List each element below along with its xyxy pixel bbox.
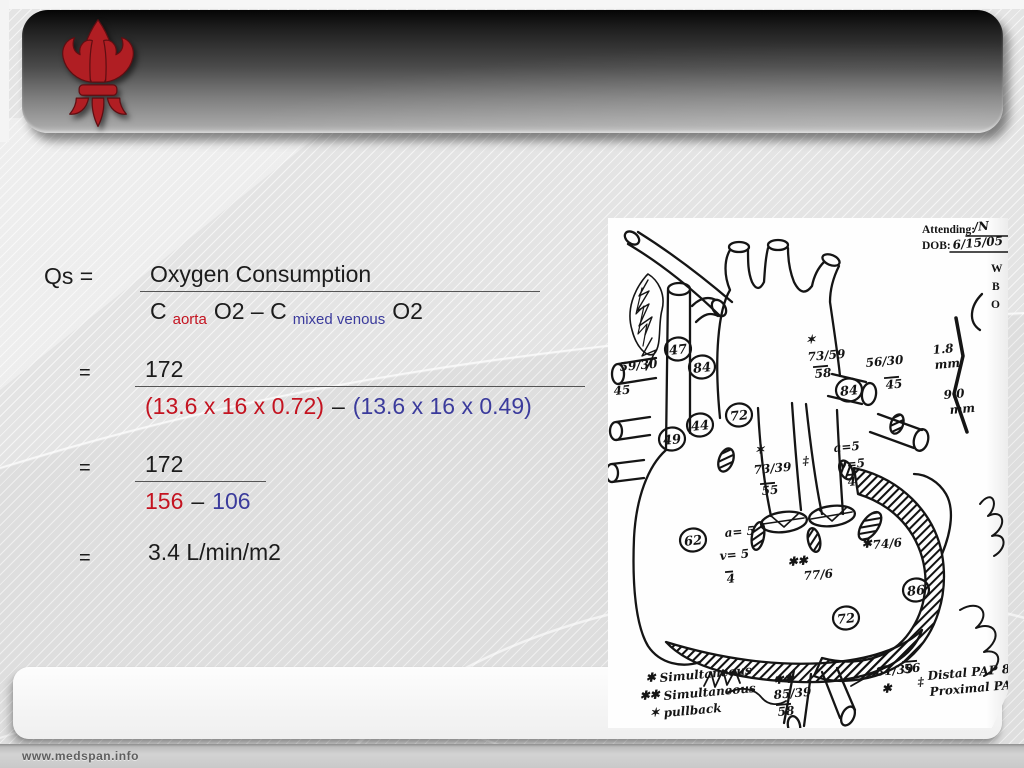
scan-annotation: ✱ [881,681,894,696]
scan-annotation: ‡ [801,453,810,468]
scan-annotation: 59/30 [619,357,659,374]
svg-text:47: 47 [668,342,688,359]
scan-annotation-circled: 72 [832,605,860,631]
scan-image-panel: Attending:/NDOB:6/15/05WBO1.8mm9.0mm59/3… [608,218,1008,728]
numerator-172: 172 [135,356,585,387]
scan-annotation: ✱✱ [639,687,662,703]
scan-annotation: 58 [777,704,796,719]
svg-text:49: 49 [662,432,682,449]
scan-annotation-circled: 49 [658,426,686,452]
venous-value: 106 [212,488,250,514]
slide: Qs = Oxygen Consumption CaortaO2 – Cmixe… [0,0,1024,768]
svg-text:72: 72 [836,611,856,628]
fleur-de-lis-icon [50,16,146,134]
svg-text:86: 86 [906,583,926,600]
denominator-difference: 156–106 [135,482,266,515]
svg-text:44: 44 [690,418,710,435]
scan-annotation: B [992,281,1000,293]
fraction-step-2: 172 156–106 [135,451,266,515]
equals-sign-2: = [79,362,91,385]
scan-annotation: 56 [903,661,922,676]
slide-left-margin [0,0,9,142]
scan-annotation: 9.0 [943,386,966,402]
scan-annotation-overline [846,474,854,475]
scan-annotation: 1.8 [932,341,955,357]
scan-annotation: ‡ [916,674,925,689]
scan-annotation: ✱✱ [787,553,810,569]
scan-annotation: 74/6 [872,535,903,552]
scan-annotation: 4 [726,571,736,586]
svg-text:62: 62 [683,533,703,550]
scan-annotation: 45 [885,377,903,392]
title-banner [22,10,1003,133]
svg-text:72: 72 [729,408,749,425]
fraction-step-1: 172 (13.6 x 16 x 0.72)–(13.6 x 16 x 0.49… [135,356,585,420]
equals-sign-3: = [79,457,91,480]
scan-annotation: 55 [761,483,779,498]
den-c-aorta: C [150,298,167,324]
scan-annotation: mm [934,356,961,372]
scan-annotation-circled: 72 [725,402,753,428]
minus-dash-2: – [191,488,204,514]
scan-annotation: 73/39 [753,460,793,477]
scan-annotation: Distal PAP 87 [926,661,1008,683]
den-o2: O2 [392,298,423,324]
svg-text:84: 84 [839,383,859,400]
scan-annotation-circled: 84 [835,377,863,403]
scan-annotation: ✶ [649,705,661,720]
fraction-definition: Oxygen Consumption CaortaO2 – Cmixed ven… [140,261,540,325]
numerator-oxygen-consumption: Oxygen Consumption [140,261,540,292]
scan-annotation: 73/59 [807,347,847,364]
arterial-term: (13.6 x 16 x 0.72) [145,393,324,419]
scan-annotation: 56/30 [865,353,905,370]
scan-annotation-overline [725,571,733,572]
scan-annotation-circled: 62 [679,527,707,553]
bottom-strip [0,744,1024,768]
equals-sign-4: = [79,547,91,570]
scan-annotation: O [991,299,1000,311]
scan-annotation: /N [972,219,991,234]
qs-result: 3.4 L/min/m2 [148,539,281,566]
scan-annotation: v=5 [839,456,866,472]
scan-annotation: ✱✱ [773,671,796,687]
arterial-value: 156 [145,488,183,514]
scan-annotation: ✱ [645,670,658,685]
scan-annotation: a=5 [833,439,860,455]
slide-top-margin [0,0,1024,9]
scan-annotation: 77/6 [803,566,834,583]
scan-annotation: a= 5 [724,523,755,540]
scan-annotation: Simultaneous [663,681,756,703]
scan-annotation: 4 [847,474,857,489]
scan-annotation: pullback [663,701,722,720]
heart-diagram-sketch: Attending:/NDOB:6/15/05WBO1.8mm9.0mm59/3… [608,218,1008,728]
scan-annotation: 6/15/05 [952,234,1004,252]
svg-text:84: 84 [692,360,712,377]
sketch-lines [608,229,1008,728]
scan-annotation: ✶ [805,332,817,347]
denominator-content-difference: CaortaO2 – Cmixed venousO2 [140,292,540,325]
scan-annotation: v= 5 [719,546,750,563]
qs-label: Qs = [44,263,93,290]
venous-term: (13.6 x 16 x 0.49) [353,393,532,419]
denominator-products: (13.6 x 16 x 0.72)–(13.6 x 16 x 0.49) [135,387,585,420]
den-o2-minus-c: O2 – C [214,298,287,324]
scan-annotation: ✶ [754,442,766,457]
scan-annotation-circled: 84 [688,354,716,380]
den-sub-mixed-venous: mixed venous [293,311,386,328]
watermark: www.medspan.info [22,749,139,763]
scan-annotation: 58 [814,366,833,381]
scan-annotation: mm [949,401,976,417]
numerator-172-b: 172 [135,451,266,482]
scan-annotation: Attending: [922,224,975,236]
den-sub-aorta: aorta [173,311,207,328]
scan-annotation: 45 [613,383,631,398]
scan-annotation: DOB: [922,240,951,252]
minus-dash: – [332,393,345,419]
scan-annotation: W [991,263,1003,275]
banner-sheen [22,10,1003,133]
